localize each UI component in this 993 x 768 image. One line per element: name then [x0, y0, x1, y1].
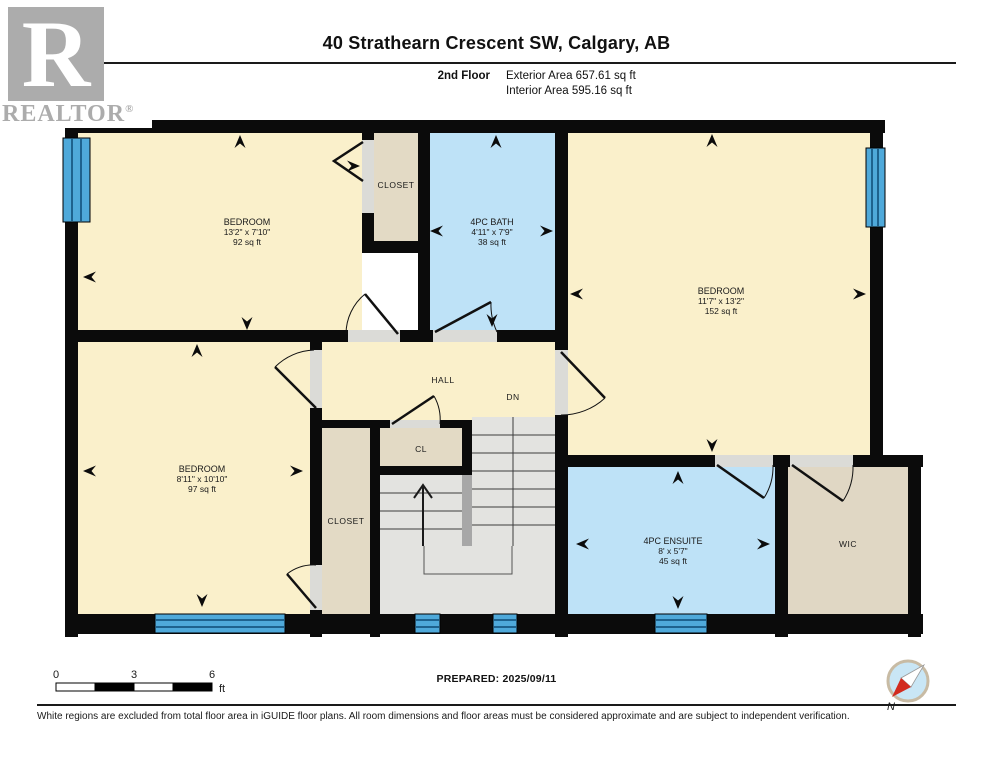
- threshold: [433, 330, 497, 342]
- window: [155, 614, 285, 633]
- prepared-date: PREPARED: 2025/09/11: [0, 673, 993, 685]
- window: [655, 614, 707, 633]
- label-dn: DN: [506, 392, 519, 402]
- floor-label: 2nd Floor: [438, 70, 490, 82]
- stairs-landing: [380, 546, 555, 614]
- wall-top: [65, 120, 885, 133]
- room-label-bedroom-right: BEDROOM: [698, 286, 745, 296]
- bedroom-topleft-floor: [78, 133, 362, 330]
- wall-right-wic: [908, 455, 921, 637]
- realtor-logo-text: REALTOR®: [2, 101, 152, 128]
- exterior-area: Exterior Area 657.61 sq ft: [506, 70, 636, 82]
- realtor-logo-word: REALTOR: [2, 101, 125, 127]
- room-label-bath: 4PC BATH: [470, 217, 513, 227]
- label-wic: WIC: [839, 539, 857, 549]
- room-dims: 8'11" x 10'10": [177, 474, 228, 484]
- room-area: 152 sq ft: [705, 306, 738, 316]
- floorplan-page: BEDROOM 13'2" x 7'10" 92 sq ft 4PC BATH …: [0, 0, 993, 768]
- realtor-logo: R REALTOR®: [0, 0, 160, 132]
- room-label-bedroom-topleft: BEDROOM: [224, 217, 271, 227]
- threshold: [790, 455, 853, 467]
- window: [63, 138, 90, 222]
- divider-rule-top: [37, 62, 956, 64]
- wall-hall-bottom-a: [322, 420, 390, 428]
- room-dims: 4'11" x 7'9": [471, 227, 512, 237]
- threshold: [348, 330, 400, 342]
- room-dims: 13'2" x 7'10": [224, 227, 271, 237]
- stair-divider-rail: [462, 470, 472, 546]
- room-area: 97 sq ft: [188, 484, 217, 494]
- threshold: [555, 350, 568, 415]
- threshold: [715, 455, 773, 467]
- window: [493, 614, 517, 633]
- label-closet-left: CLOSET: [327, 516, 364, 526]
- wall-ensuite-wic: [775, 467, 788, 637]
- room-label-ensuite: 4PC ENSUITE: [643, 536, 702, 546]
- threshold: [362, 140, 374, 213]
- wall-cl-right: [462, 420, 472, 472]
- label-cl: CL: [415, 444, 427, 454]
- realtor-logo-mark: R: [8, 7, 104, 104]
- room-area: 45 sq ft: [659, 556, 688, 566]
- interior-area: Interior Area 595.16 sq ft: [506, 85, 632, 97]
- registered-mark: ®: [125, 103, 134, 115]
- room-area: 38 sq ft: [478, 237, 507, 247]
- threshold: [310, 350, 322, 408]
- room-dims: 8' x 5'7": [658, 546, 687, 556]
- wall-bath-left: [418, 120, 430, 342]
- room-dims: 11'7" x 13'2": [698, 296, 744, 306]
- room-label-bedroom-bottomleft: BEDROOM: [179, 464, 226, 474]
- disclaimer-text: White regions are excluded from total fl…: [37, 711, 967, 722]
- realtor-logo-letter: R: [8, 0, 104, 99]
- label-closet-top: CLOSET: [377, 180, 414, 190]
- wall-cl-bottom: [372, 466, 472, 475]
- divider-rule-bottom: [37, 704, 956, 706]
- label-hall: HALL: [431, 375, 454, 385]
- room-area: 92 sq ft: [233, 237, 262, 247]
- wall-closet-left-right: [370, 420, 380, 637]
- window: [866, 148, 885, 227]
- window: [415, 614, 440, 633]
